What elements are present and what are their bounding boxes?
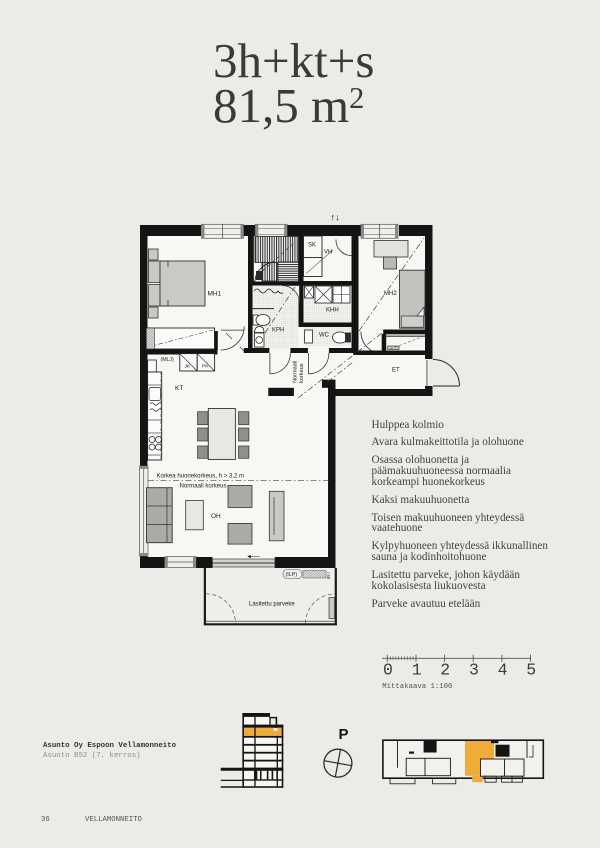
- svg-text:P: P: [339, 726, 349, 743]
- svg-text:KPH: KPH: [272, 328, 284, 334]
- svg-text:0: 0: [383, 661, 393, 680]
- svg-text:MH1: MH1: [208, 291, 222, 298]
- svg-text:WC: WC: [319, 333, 330, 339]
- svg-text:Lasitettu parveke: Lasitettu parveke: [249, 601, 295, 607]
- svg-text:(ILP): (ILP): [286, 572, 298, 578]
- svg-text:Normaali: Normaali: [293, 361, 299, 383]
- svg-text:ET: ET: [392, 368, 400, 374]
- svg-text:2: 2: [440, 661, 450, 680]
- svg-text:4: 4: [498, 661, 508, 680]
- svg-text:PK: PK: [202, 364, 209, 370]
- svg-text:85 t: 85 t: [326, 571, 331, 579]
- svg-text:MH2: MH2: [384, 291, 397, 297]
- svg-text:JK: JK: [185, 364, 191, 370]
- svg-text:3: 3: [469, 661, 479, 680]
- svg-text:SK: SK: [308, 243, 316, 249]
- svg-text:KT: KT: [175, 385, 183, 392]
- svg-text:1: 1: [412, 661, 422, 680]
- svg-text:korkeus: korkeus: [299, 363, 305, 383]
- svg-text:KHH: KHH: [326, 308, 339, 314]
- svg-text:VH: VH: [324, 250, 332, 256]
- svg-text:(MLJ): (MLJ): [161, 357, 175, 363]
- svg-text:Normaali korkeus: Normaali korkeus: [180, 483, 227, 489]
- svg-text:5: 5: [526, 661, 536, 680]
- svg-text:Korkea huonekorkeus, h > 3,2 m: Korkea huonekorkeus, h > 3,2 m: [157, 473, 245, 479]
- svg-text:OH: OH: [211, 513, 221, 520]
- svg-text:↑↓: ↑↓: [331, 213, 341, 224]
